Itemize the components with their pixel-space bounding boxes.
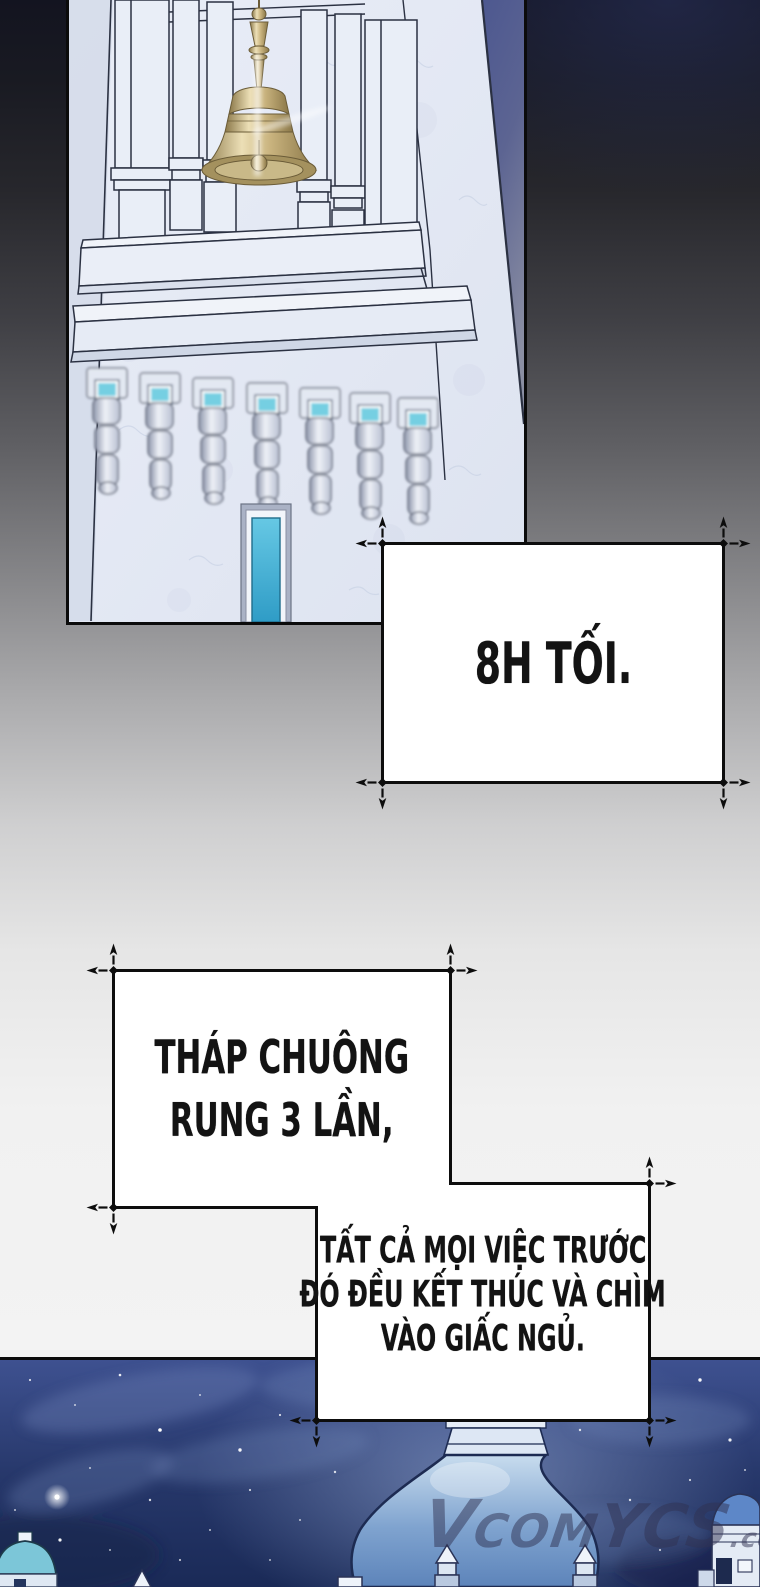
watermark-com: COM (470, 1504, 602, 1558)
caption-2-line-1: THÁP CHUÔNG (155, 1030, 410, 1084)
watermark-ycs: YCS (595, 1492, 737, 1562)
tower-window (241, 504, 291, 622)
watermark-suffix: .co (728, 1524, 760, 1554)
caption-box-1: 8H TỐI. (384, 546, 722, 780)
bell-tower-panel (66, 0, 527, 625)
bright-star-glow (44, 1484, 70, 1510)
bell-tower-illustration (69, 0, 524, 622)
caption-3-line-1: TẤT CẢ MỌI VIỆC TRƯỚC (320, 1229, 646, 1271)
caption-1-text: 8H TỐI. (474, 630, 631, 697)
site-watermark: VCOMYCS.co (419, 1492, 760, 1558)
caption-2-line-2: RUNG 3 LẦN, (170, 1093, 394, 1147)
comic-page: VCOMYCS.co 8H TỐI. (0, 0, 760, 1587)
caption-3-line-3: VÀO GIẤC NGỦ. (381, 1317, 585, 1359)
caption-3-line-2: ĐÓ ĐỀU KẾT THÚC VÀ CHÌM (300, 1273, 666, 1315)
caption-box-2: THÁP CHUÔNG RUNG 3 LẦN, (115, 972, 449, 1205)
caption-box-3: TẤT CẢ MỌI VIỆC TRƯỚC ĐÓ ĐỀU KẾT THÚC VÀ… (318, 1185, 648, 1418)
